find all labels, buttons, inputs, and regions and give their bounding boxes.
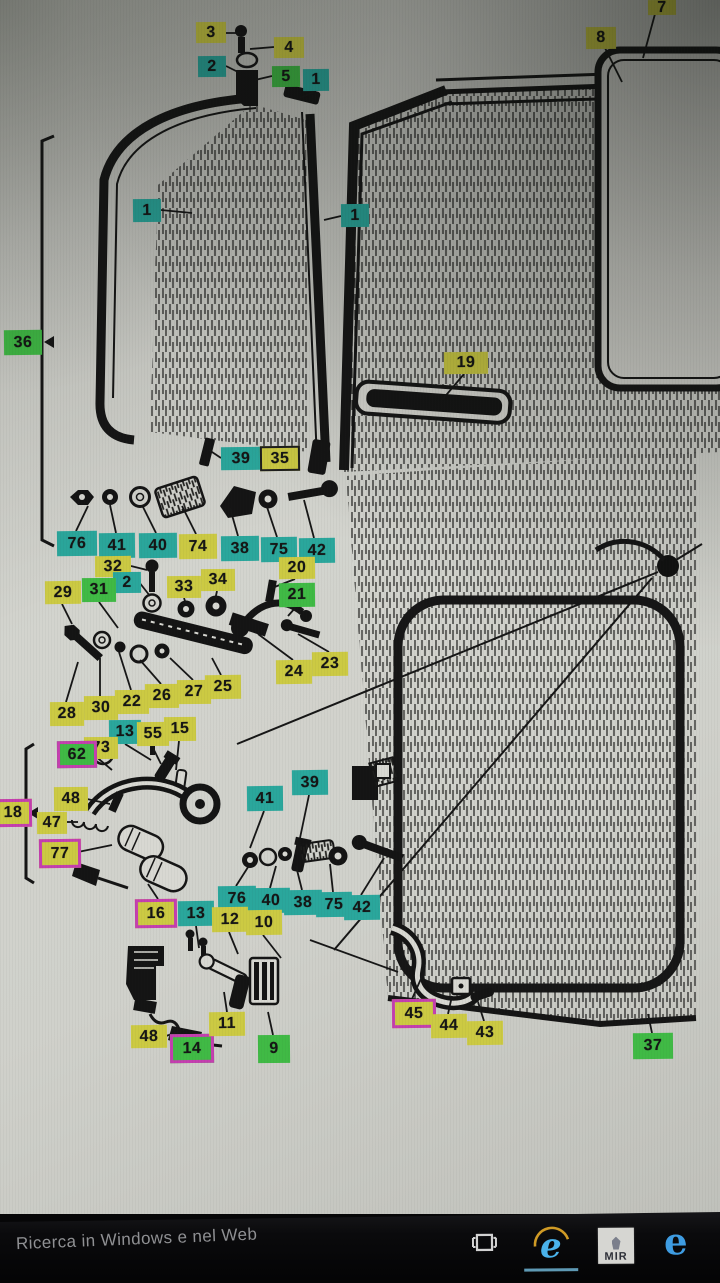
part-label-48: 48: [131, 1025, 167, 1048]
internet-explorer-button[interactable]: e: [530, 1222, 574, 1271]
part-label-38: 38: [221, 536, 259, 561]
part-label-41: 41: [247, 786, 283, 811]
part-label-41: 41: [99, 533, 135, 558]
part-label-27: 27: [177, 680, 211, 704]
part-label-2: 2: [198, 56, 226, 77]
svg-text:e: e: [540, 1226, 562, 1266]
part-label-12: 12: [212, 907, 248, 932]
part-label-19: 19: [444, 352, 488, 374]
part-label-1: 1: [341, 204, 369, 227]
part-label-39: 39: [292, 770, 328, 795]
part-label-8: 8: [586, 27, 616, 49]
part-label-2: 2: [113, 572, 141, 593]
part-label-33: 33: [167, 576, 201, 598]
part-label-10: 10: [246, 910, 282, 935]
part-label-9: 9: [258, 1035, 290, 1063]
part-label-1: 1: [133, 199, 161, 222]
part-label-18: 18: [0, 799, 32, 827]
mir-app-label: MIR: [604, 1250, 627, 1263]
mir-app-emblem-icon: [611, 1237, 620, 1250]
part-label-36: 36: [4, 330, 42, 355]
part-label-22: 22: [115, 690, 149, 714]
part-label-1: 1: [303, 69, 329, 91]
part-label-13: 13: [178, 901, 214, 926]
part-label-24: 24: [276, 660, 312, 684]
part-label-43: 43: [467, 1021, 503, 1045]
part-label-21: 21: [279, 583, 315, 607]
part-label-5: 5: [272, 66, 300, 87]
part-label-28: 28: [50, 702, 84, 726]
part-labels-layer: 3425178113619393576414074387542322333420…: [0, 0, 720, 1214]
part-label-45: 45: [392, 999, 436, 1028]
mir-app-button[interactable]: MIR: [598, 1228, 634, 1264]
part-label-26: 26: [145, 684, 179, 708]
part-label-42: 42: [344, 895, 380, 920]
part-label-34: 34: [201, 569, 235, 591]
taskbar: Ricerca in Windows e nel Web e MIR e: [0, 1210, 720, 1280]
edge-button[interactable]: e: [664, 1223, 688, 1260]
part-label-20: 20: [279, 557, 315, 579]
part-label-76: 76: [57, 531, 97, 556]
part-label-47: 47: [37, 812, 67, 834]
part-label-23: 23: [312, 652, 348, 676]
part-label-48: 48: [54, 787, 88, 811]
taskbar-search-box[interactable]: Ricerca in Windows e nel Web: [16, 1221, 347, 1254]
part-label-44: 44: [431, 1014, 467, 1038]
task-view-icon: [468, 1229, 500, 1257]
part-label-29: 29: [45, 581, 81, 604]
part-label-74: 74: [179, 534, 217, 559]
part-label-30: 30: [84, 696, 118, 720]
part-label-4: 4: [274, 37, 304, 58]
task-view-button[interactable]: [468, 1229, 500, 1262]
part-label-62: 62: [57, 741, 97, 768]
part-label-39: 39: [221, 447, 261, 470]
part-label-35: 35: [260, 446, 300, 471]
part-label-31: 31: [82, 578, 116, 602]
part-label-40: 40: [139, 533, 177, 558]
part-label-3: 3: [196, 22, 226, 43]
active-app-indicator: [524, 1268, 578, 1271]
part-label-37: 37: [633, 1033, 673, 1059]
part-label-15: 15: [164, 717, 196, 741]
part-label-14: 14: [170, 1034, 214, 1063]
internet-explorer-icon: e: [530, 1222, 574, 1266]
edge-icon: e: [664, 1219, 688, 1263]
taskbar-content: Ricerca in Windows e nel Web e MIR e: [0, 1207, 720, 1283]
part-label-7: 7: [648, 0, 676, 15]
part-label-11: 11: [209, 1012, 245, 1036]
monitor-screen: 3425178113619393576414074387542322333420…: [0, 0, 720, 1214]
part-label-16: 16: [135, 899, 177, 928]
part-label-77: 77: [39, 839, 81, 868]
